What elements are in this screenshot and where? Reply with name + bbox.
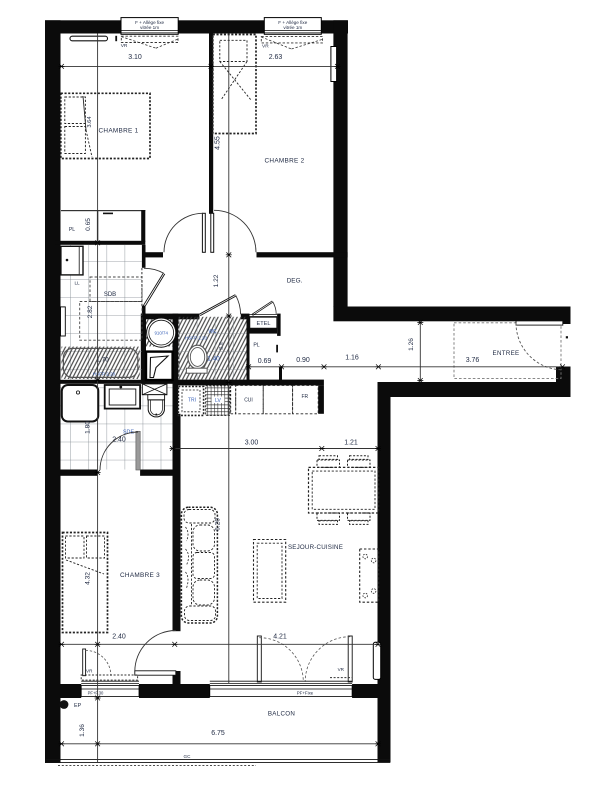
svg-text:VR: VR [86, 669, 93, 674]
svg-text:1.26: 1.26 [408, 338, 415, 351]
svg-text:4.55: 4.55 [215, 136, 222, 150]
svg-text:FR: FR [301, 394, 308, 400]
svg-text:BALCON: BALCON [268, 711, 295, 718]
svg-text:1.21: 1.21 [344, 440, 358, 447]
svg-text:SEJOUR-CUISINE: SEJOUR-CUISINE [288, 544, 343, 551]
svg-text:CHAMBRE 2: CHAMBRE 2 [265, 158, 305, 165]
svg-text:HSFP 2.20: HSFP 2.20 [185, 336, 207, 341]
svg-text:4.21: 4.21 [273, 634, 287, 641]
svg-text:1.36: 1.36 [79, 724, 86, 737]
svg-text:6.20: 6.20 [215, 518, 222, 531]
svg-text:CUI: CUI [244, 398, 253, 404]
svg-text:vitrée 1m: vitrée 1m [140, 25, 159, 30]
svg-text:60: 60 [219, 346, 224, 351]
svg-text:3.76: 3.76 [466, 357, 480, 364]
svg-text:PF+F.30: PF+F.30 [88, 691, 104, 696]
svg-text:CHAMBRE 1: CHAMBRE 1 [99, 128, 139, 135]
svg-text:CHAMBRE 3: CHAMBRE 3 [120, 572, 160, 579]
svg-text:1.16: 1.16 [345, 355, 359, 362]
svg-text:0.65: 0.65 [85, 218, 92, 231]
svg-text:VR: VR [262, 43, 269, 49]
svg-text:1.70: 1.70 [96, 357, 109, 364]
svg-text:WC: WC [208, 329, 217, 335]
svg-text:PL: PL [253, 342, 259, 348]
svg-text:2.63: 2.63 [269, 54, 283, 61]
svg-text:ENTREE: ENTREE [493, 350, 520, 357]
svg-text:vitrée 1m: vitrée 1m [283, 25, 302, 30]
svg-text:3.64: 3.64 [87, 116, 93, 128]
svg-text:ETEL: ETEL [257, 321, 271, 327]
svg-text:GC: GC [184, 754, 192, 759]
svg-text:PF+Fixe: PF+Fixe [297, 691, 314, 696]
svg-text:1.40: 1.40 [207, 356, 220, 363]
svg-text:SDB: SDB [104, 292, 116, 298]
svg-text:TRI: TRI [188, 398, 196, 404]
svg-text:1.22: 1.22 [213, 274, 220, 287]
svg-text:DEG.: DEG. [287, 278, 303, 285]
svg-text:910/74: 910/74 [154, 331, 168, 336]
svg-text:3.10: 3.10 [128, 54, 142, 61]
svg-text:2.40: 2.40 [112, 634, 126, 641]
svg-text:LV: LV [215, 398, 221, 404]
svg-text:2.82: 2.82 [87, 305, 94, 318]
svg-text:0.90: 0.90 [296, 357, 310, 364]
svg-text:0.69: 0.69 [258, 358, 272, 365]
svg-text:6.75: 6.75 [211, 730, 225, 737]
svg-text:EP: EP [74, 703, 82, 709]
svg-text:VR: VR [338, 667, 345, 672]
svg-text:HSFP 2.20: HSFP 2.20 [93, 371, 116, 376]
svg-text:PL: PL [69, 227, 75, 233]
svg-text:LL: LL [74, 281, 80, 286]
svg-text:1.80: 1.80 [85, 421, 92, 434]
svg-text:VR: VR [121, 43, 128, 49]
svg-text:3.00: 3.00 [245, 440, 259, 447]
svg-text:4.32: 4.32 [85, 572, 92, 585]
